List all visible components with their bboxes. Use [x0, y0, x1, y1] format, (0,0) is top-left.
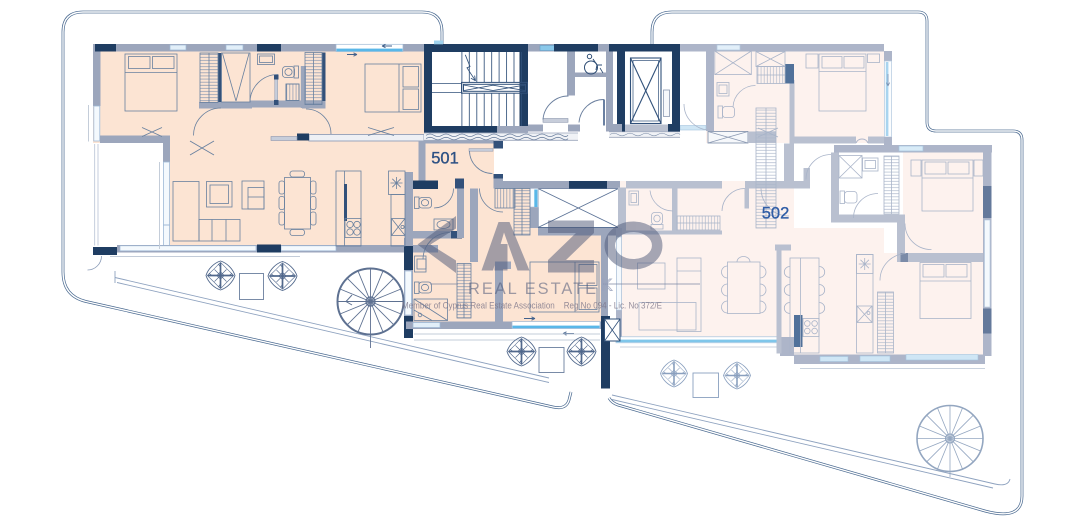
svg-text:REAL ESTATE: REAL ESTATE — [468, 280, 598, 298]
svg-text:502: 502 — [762, 205, 790, 223]
svg-text:Member of Cyprus Real Estate A: Member of Cyprus Real Estate Association… — [402, 301, 662, 311]
svg-text:501: 501 — [431, 150, 459, 168]
svg-text:K: K — [601, 276, 613, 295]
